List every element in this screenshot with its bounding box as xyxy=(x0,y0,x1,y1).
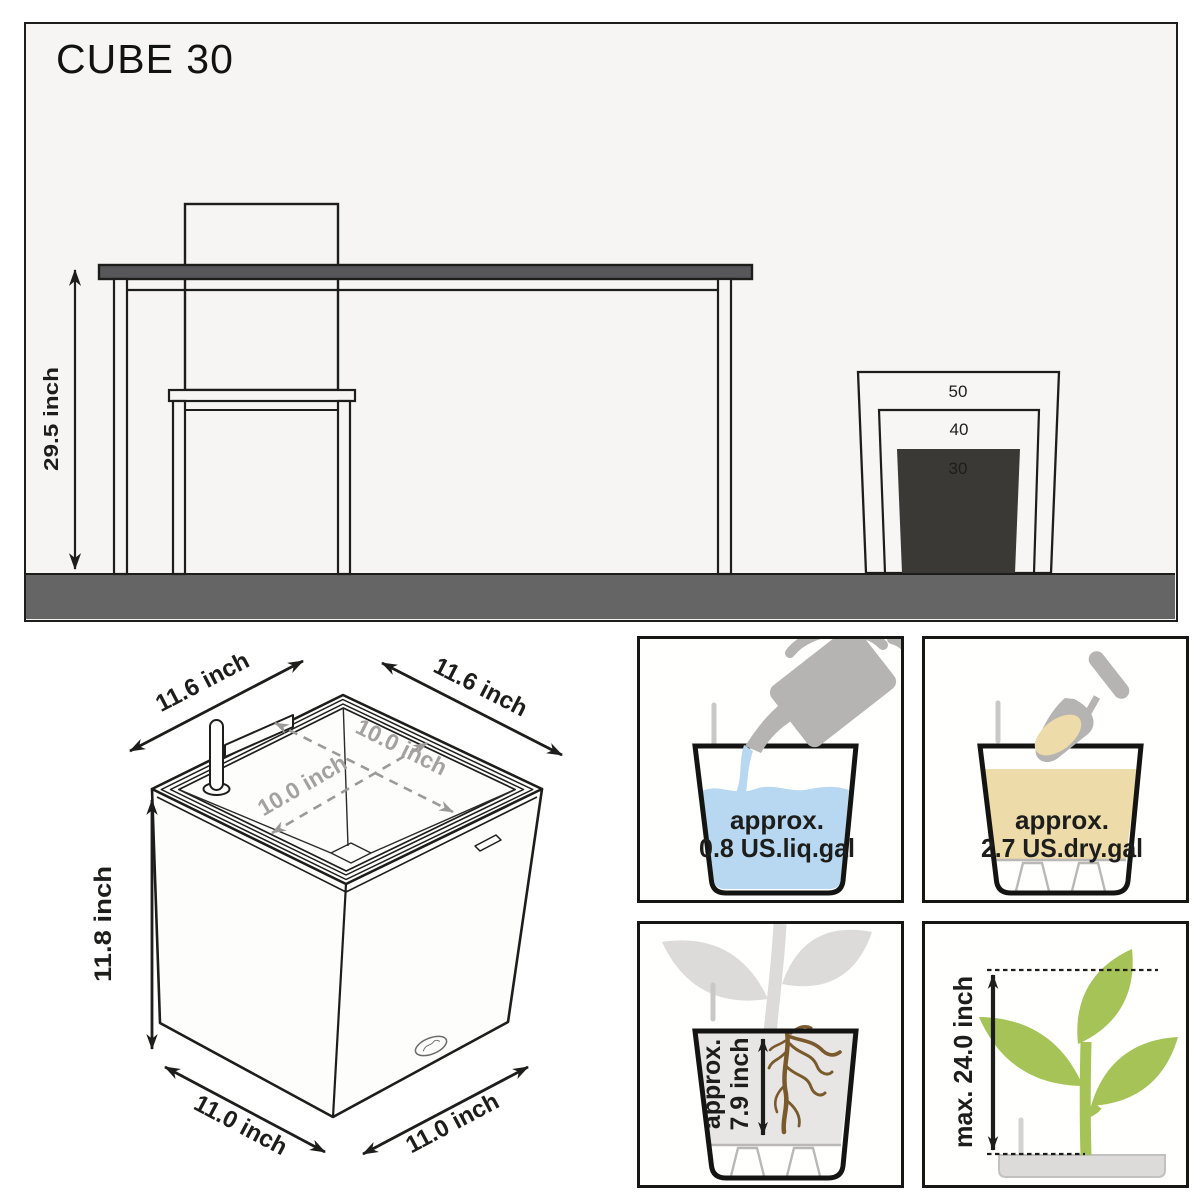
table-leg-right xyxy=(718,279,731,574)
soil-volume-label-2: 2.7 US.dry.gal xyxy=(981,833,1143,863)
watering-can-icon xyxy=(745,639,901,753)
plant-icon xyxy=(979,949,1178,1155)
info-box-soil-volume: approx. 2.7 US.dry.gal xyxy=(922,636,1189,903)
leaf-right xyxy=(1091,1037,1178,1106)
chair-seat xyxy=(169,390,355,401)
root-depth-label-2: 7.9 inch xyxy=(726,1037,754,1130)
indicator-stick xyxy=(210,720,223,790)
false-bottom xyxy=(996,860,1126,891)
leaf-top xyxy=(1077,949,1132,1044)
table-height-dimension: 29.5 inch xyxy=(41,270,75,569)
info-box-plant-height: max. 24.0 inch xyxy=(922,921,1189,1188)
chair-backrest xyxy=(185,204,338,390)
water-volume-label-2: 0.8 US.liq.gal xyxy=(699,833,855,863)
root-depth-label-1: approx. xyxy=(698,1039,726,1129)
chair-leg-left xyxy=(173,401,185,574)
size-comparison-cubes: 50 40 30 xyxy=(858,372,1059,573)
info-box-water-volume: approx. 0.8 US.liq.gal xyxy=(637,636,904,903)
cube-50-label: 50 xyxy=(949,382,968,401)
chair-leg-right xyxy=(338,401,350,574)
table-leg-left xyxy=(114,279,127,574)
plant-height-label: max. 24.0 inch xyxy=(948,976,978,1148)
false-bottom xyxy=(711,1145,841,1176)
water-volume-label-1: approx. xyxy=(730,805,824,835)
chair xyxy=(185,204,338,390)
table-top xyxy=(99,265,752,279)
height-label: 11.8 inch xyxy=(90,866,117,982)
scene-drawing: 29.5 inch 50 40 30 xyxy=(26,24,1175,619)
infographic-root: CUBE 30 xyxy=(0,0,1200,1200)
floor xyxy=(26,574,1175,619)
chair-front xyxy=(169,390,355,574)
cube-30-label: 30 xyxy=(949,459,968,478)
table-height-label: 29.5 inch xyxy=(41,367,63,471)
soil-volume-label-1: approx. xyxy=(1015,805,1109,835)
cube-40-label: 40 xyxy=(950,420,969,439)
bottom-width-label-right: 11.0 inch xyxy=(401,1088,503,1159)
info-box-root-depth: approx. 7.9 inch xyxy=(637,921,904,1188)
scene-panel: CUBE 30 xyxy=(24,22,1178,622)
planter-dimension-drawing: 10.0 inch 10.0 inch 11.6 inch 11.6 inch … xyxy=(60,640,620,1200)
plant-silhouette-icon xyxy=(662,924,872,1034)
top-width-label-left: 11.6 inch xyxy=(151,647,253,718)
